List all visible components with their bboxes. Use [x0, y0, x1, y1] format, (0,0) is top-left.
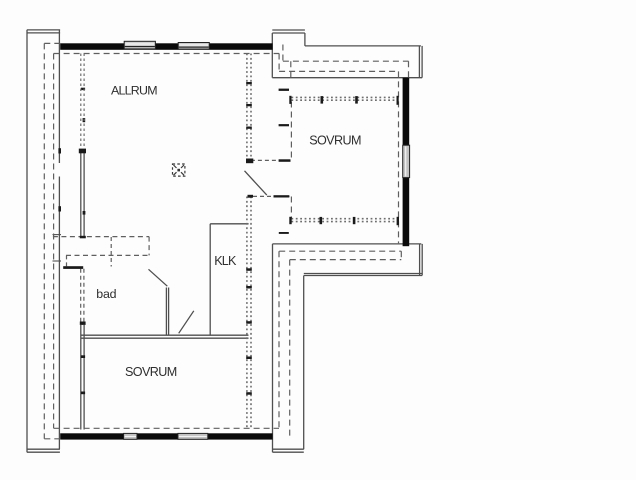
svg-text:ALLRUM: ALLRUM	[111, 84, 157, 98]
svg-text:KLK: KLK	[214, 254, 237, 268]
svg-text:SOVRUM: SOVRUM	[125, 365, 177, 379]
svg-text:bad: bad	[96, 287, 116, 301]
svg-text:SOVRUM: SOVRUM	[309, 134, 361, 148]
